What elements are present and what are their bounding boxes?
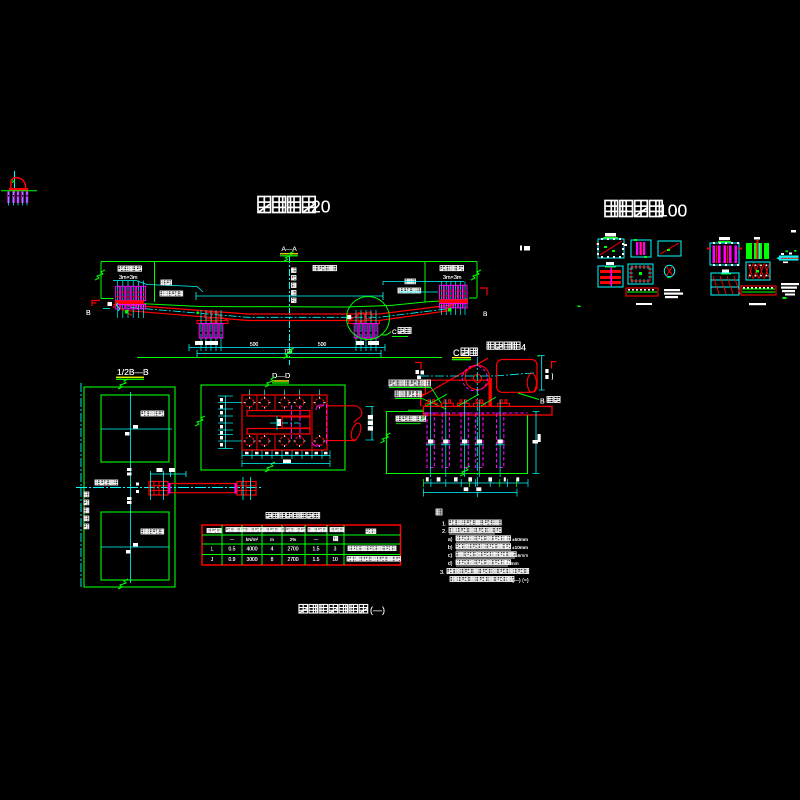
svg-text:±10mm: ±10mm <box>512 545 528 551</box>
svg-text:0.5: 0.5 <box>229 547 236 553</box>
svg-text:0.9: 0.9 <box>229 557 236 563</box>
svg-text:100: 100 <box>658 201 687 221</box>
svg-text:c): c) <box>448 553 453 559</box>
svg-text:1/2B—B: 1/2B—B <box>117 367 149 377</box>
svg-text:3m×3m: 3m×3m <box>443 275 462 281</box>
svg-text:2.: 2. <box>442 529 447 535</box>
svg-text:C: C <box>392 329 397 336</box>
svg-text:A—A: A—A <box>282 246 298 253</box>
svg-text:m: m <box>270 537 274 542</box>
svg-text:b): b) <box>448 545 453 551</box>
svg-text:4: 4 <box>271 547 274 553</box>
svg-text:d): d) <box>448 561 453 567</box>
svg-text:500: 500 <box>250 342 259 348</box>
svg-text:4000: 4000 <box>246 547 257 553</box>
svg-text:8: 8 <box>271 557 274 563</box>
svg-text:±50mm: ±50mm <box>512 537 528 543</box>
svg-text:4: 4 <box>521 343 526 353</box>
svg-text:10: 10 <box>332 557 338 563</box>
svg-text:a): a) <box>448 537 453 543</box>
svg-text:(—): (—) <box>370 605 385 615</box>
svg-text:B: B <box>483 311 487 318</box>
svg-text:(—) (=): (—) (=) <box>512 578 529 584</box>
svg-text:kN/m²: kN/m² <box>246 537 258 542</box>
svg-text:—: — <box>314 537 319 542</box>
svg-text:1.5: 1.5 <box>313 557 320 563</box>
svg-text:—: — <box>230 537 235 542</box>
svg-text:500: 500 <box>318 342 327 348</box>
svg-text:1.: 1. <box>442 522 447 528</box>
svg-text:L: L <box>211 547 214 553</box>
svg-text:2700: 2700 <box>287 557 298 563</box>
svg-text:C: C <box>453 348 460 358</box>
svg-text:2%: 2% <box>290 537 297 542</box>
svg-text:B: B <box>86 310 91 317</box>
svg-text:3000: 3000 <box>246 557 257 563</box>
svg-text:3: 3 <box>334 547 337 553</box>
svg-text:2700: 2700 <box>287 547 298 553</box>
svg-text:3.: 3. <box>440 570 445 576</box>
svg-text:D—D: D—D <box>272 371 291 380</box>
svg-text:1.5: 1.5 <box>313 547 320 553</box>
svg-text:±5mm: ±5mm <box>515 553 528 559</box>
svg-text:]: ] <box>552 373 554 380</box>
svg-text:B: B <box>540 399 545 406</box>
svg-text:5mm: 5mm <box>508 561 519 567</box>
svg-text:20: 20 <box>311 197 331 217</box>
